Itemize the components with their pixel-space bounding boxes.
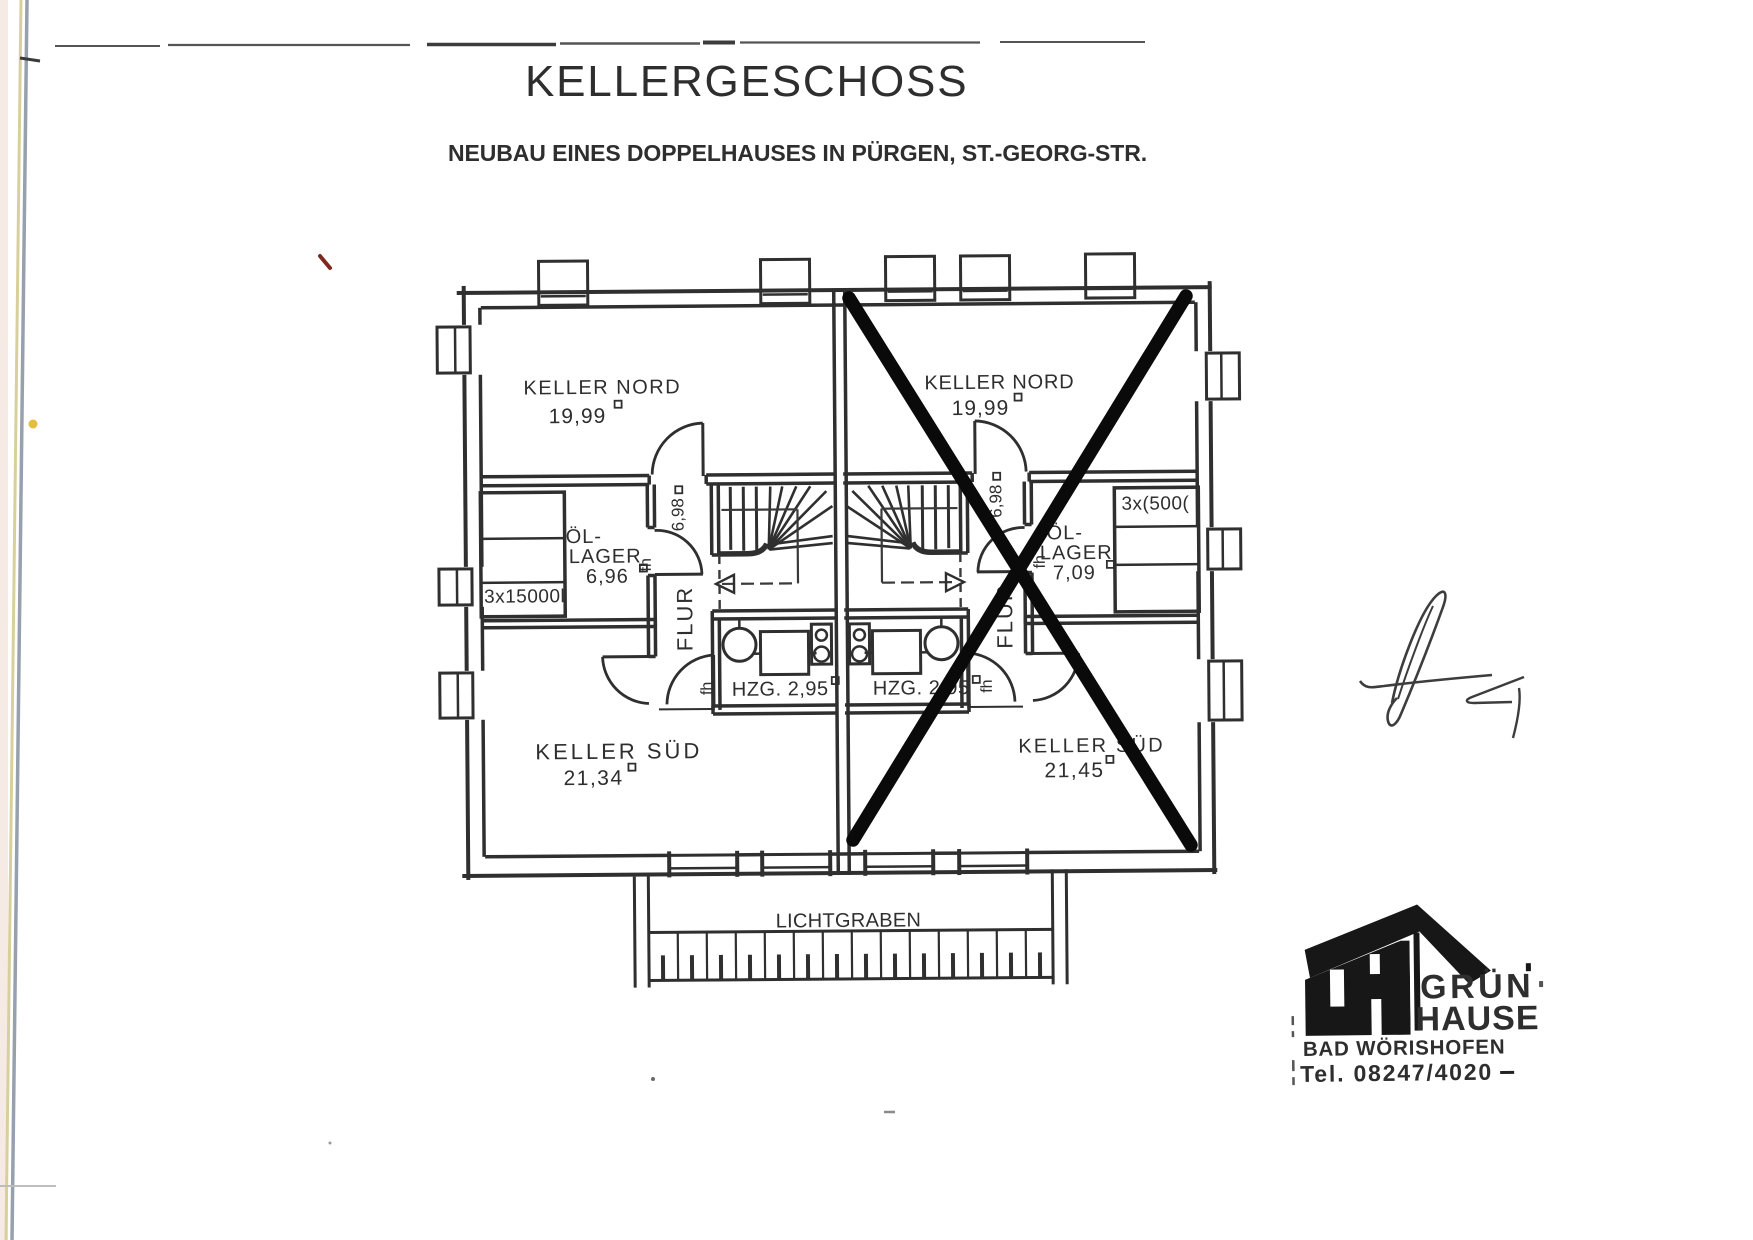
svg-text:3x15000l: 3x15000l <box>484 586 565 608</box>
svg-text:BAD WÖRISHOFEN: BAD WÖRISHOFEN <box>1303 1035 1506 1060</box>
svg-text:KELLER SÜD: KELLER SÜD <box>535 738 702 764</box>
svg-text:Tel. 08247/4020: Tel. 08247/4020 <box>1300 1059 1493 1087</box>
svg-text:21,45: 21,45 <box>1044 759 1104 782</box>
svg-text:7,09: 7,09 <box>1053 562 1096 584</box>
svg-text:KELLERGESCHOSS: KELLERGESCHOSS <box>525 57 968 106</box>
svg-text:6,96: 6,96 <box>586 566 629 588</box>
svg-text:KELLER NORD: KELLER NORD <box>523 376 681 399</box>
svg-text:LAGER: LAGER <box>569 546 642 569</box>
svg-text:fh: fh <box>638 558 655 571</box>
svg-text:ÖL-: ÖL- <box>566 526 603 548</box>
svg-text:19,99: 19,99 <box>549 405 607 428</box>
svg-text:KELLER SÜD: KELLER SÜD <box>1018 734 1165 757</box>
svg-text:fh: fh <box>699 682 716 695</box>
svg-text:FLUR: FLUR <box>672 586 698 652</box>
svg-text:6,98: 6,98 <box>668 498 687 531</box>
svg-text:LICHTGRABEN: LICHTGRABEN <box>776 909 922 932</box>
svg-text:HAUSE: HAUSE <box>1415 999 1539 1039</box>
svg-text:3x(500(: 3x(500( <box>1121 493 1189 515</box>
svg-text:NEUBAU EINES DOPPELHAUSES IN P: NEUBAU EINES DOPPELHAUSES IN PÜRGEN, ST.… <box>448 140 1147 166</box>
svg-text:21,34: 21,34 <box>563 767 623 790</box>
svg-text:19,99: 19,99 <box>952 397 1010 420</box>
svg-text:LAGER: LAGER <box>1040 542 1113 565</box>
svg-text:fh: fh <box>979 679 996 692</box>
svg-text:fh: fh <box>1032 555 1049 568</box>
svg-text:HZG. 2,95: HZG. 2,95 <box>732 678 829 701</box>
svg-text:KELLER NORD: KELLER NORD <box>924 371 1074 394</box>
